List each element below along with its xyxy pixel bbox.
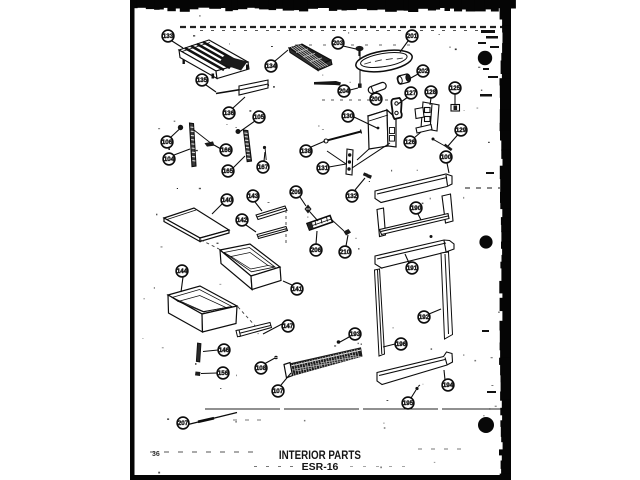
- svg-text:165: 165: [223, 168, 234, 175]
- svg-text:ESR-16: ESR-16: [302, 461, 339, 473]
- svg-text:204: 204: [339, 88, 350, 95]
- svg-text:200: 200: [371, 96, 382, 103]
- svg-text:130: 130: [343, 113, 354, 120]
- svg-text:141: 141: [292, 286, 303, 293]
- svg-text:133: 133: [163, 33, 174, 40]
- svg-text:144: 144: [177, 268, 188, 275]
- svg-text:104: 104: [164, 156, 175, 163]
- svg-text:100: 100: [441, 154, 452, 161]
- svg-text:125: 125: [450, 85, 461, 92]
- svg-text:201: 201: [407, 33, 418, 40]
- svg-text:138: 138: [301, 148, 312, 155]
- svg-text:207: 207: [178, 420, 189, 427]
- svg-text:195: 195: [403, 400, 414, 407]
- svg-text:156: 156: [218, 370, 229, 377]
- svg-text:146: 146: [219, 347, 230, 354]
- svg-text:203: 203: [333, 40, 344, 47]
- svg-text:106: 106: [162, 139, 173, 146]
- svg-text:140: 140: [222, 197, 233, 204]
- svg-text:202: 202: [418, 68, 429, 75]
- svg-text:194: 194: [443, 382, 454, 389]
- svg-text:190: 190: [411, 205, 422, 212]
- svg-text:129: 129: [456, 127, 467, 134]
- svg-text:36: 36: [152, 451, 160, 458]
- svg-text:128: 128: [426, 89, 437, 96]
- svg-text:136: 136: [224, 110, 235, 117]
- svg-text:193: 193: [350, 331, 361, 338]
- svg-text:147: 147: [283, 323, 294, 330]
- svg-text:135: 135: [197, 77, 208, 84]
- svg-text:166: 166: [221, 147, 232, 154]
- svg-text:191: 191: [407, 265, 418, 272]
- svg-text:192: 192: [419, 314, 430, 321]
- svg-text:105: 105: [254, 114, 265, 121]
- svg-text:108: 108: [256, 365, 267, 372]
- svg-text:143: 143: [248, 193, 259, 200]
- svg-text:126: 126: [405, 139, 416, 146]
- svg-text:134: 134: [266, 63, 277, 70]
- svg-text:132: 132: [347, 193, 358, 200]
- svg-text:142: 142: [237, 217, 248, 224]
- svg-text:209: 209: [291, 189, 302, 196]
- svg-text:210: 210: [340, 249, 351, 256]
- svg-text:131: 131: [318, 165, 329, 172]
- svg-text:196: 196: [396, 341, 407, 348]
- svg-text:167: 167: [258, 164, 269, 171]
- svg-text:127: 127: [406, 90, 417, 97]
- svg-text:206: 206: [311, 247, 322, 254]
- svg-text:107: 107: [273, 388, 284, 395]
